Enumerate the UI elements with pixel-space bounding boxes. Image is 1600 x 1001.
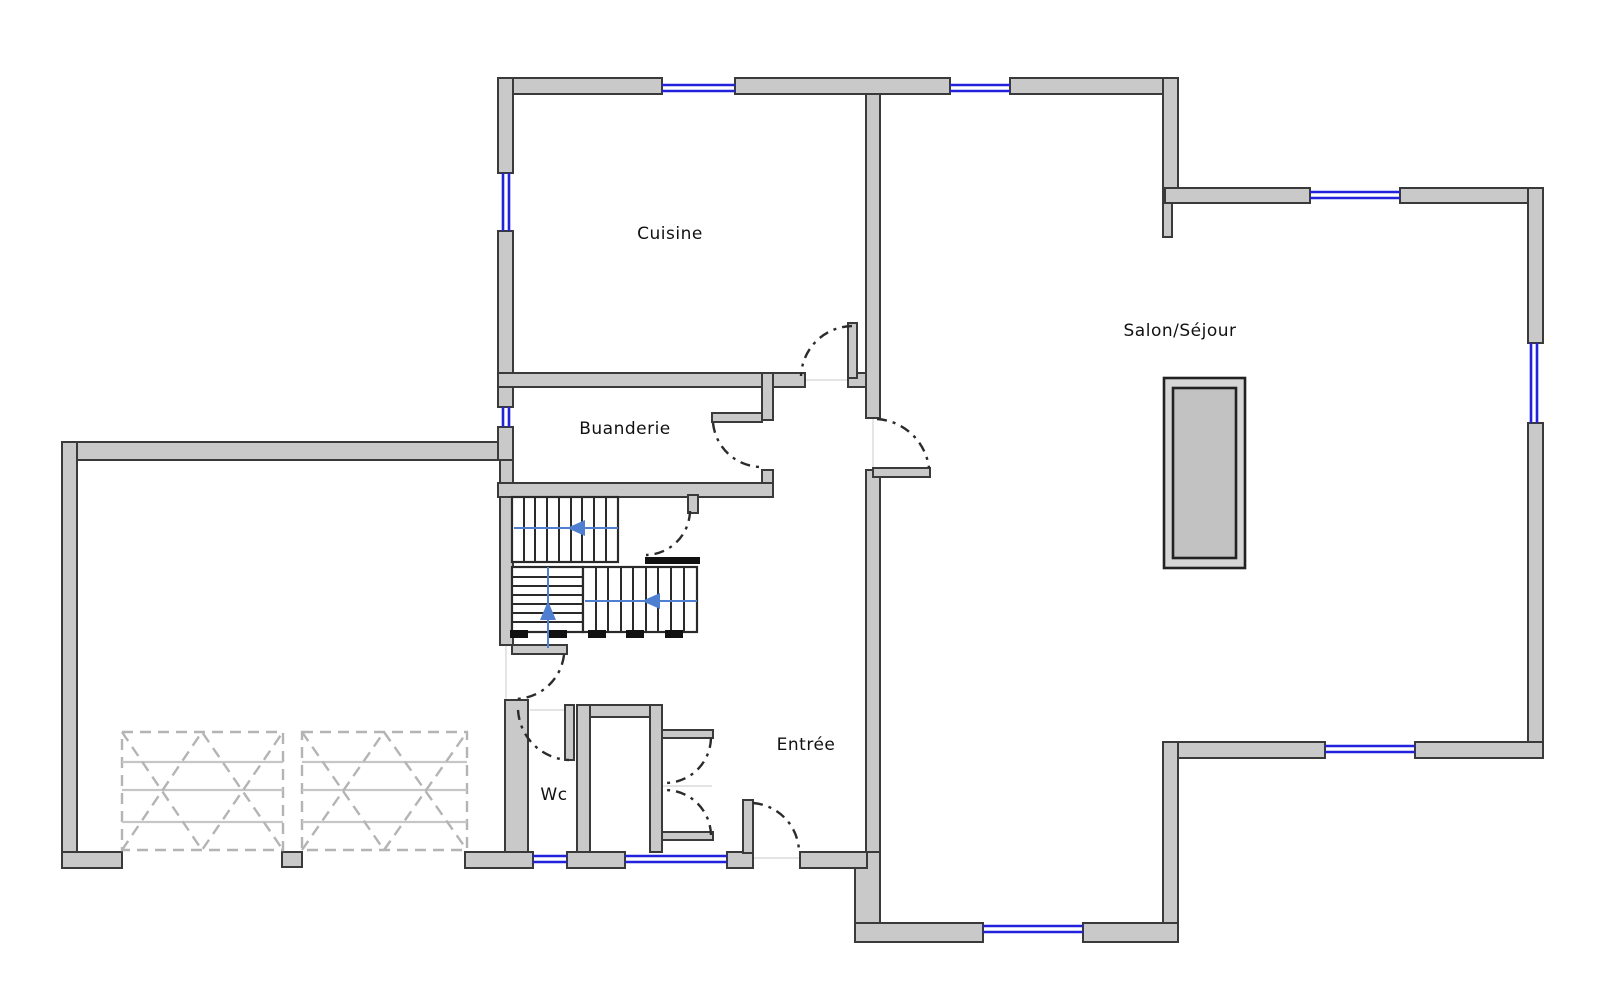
room-label-entree: Entrée xyxy=(777,735,836,755)
stair-upper-flight xyxy=(512,497,618,562)
window xyxy=(533,856,567,862)
room-label-cuisine: Cuisine xyxy=(637,224,703,244)
window xyxy=(503,407,509,427)
window xyxy=(983,926,1083,932)
garage-doors xyxy=(122,732,467,850)
closet-door-leaf-top xyxy=(662,730,713,738)
entry-door-arc xyxy=(753,803,799,851)
closet-door-arc-bottom xyxy=(665,790,711,835)
window xyxy=(662,85,735,91)
window xyxy=(1325,746,1415,752)
cuisine-door-leaf xyxy=(848,323,857,378)
fireplace xyxy=(1164,378,1245,568)
room-label-wc: Wc xyxy=(540,785,567,805)
closet-door-arc-top xyxy=(665,738,711,783)
entry-door-leaf xyxy=(743,800,753,853)
wc-door-leaf xyxy=(565,705,574,760)
stair-threshold xyxy=(645,557,700,564)
room-label-buanderie: Buanderie xyxy=(579,419,671,439)
cuisine-door-arc xyxy=(801,326,852,376)
window xyxy=(503,173,509,231)
window xyxy=(625,856,727,862)
floor-plan-drawing xyxy=(0,0,1600,1001)
window xyxy=(1531,343,1537,423)
window xyxy=(950,85,1010,91)
stair-door-arc xyxy=(646,511,690,555)
buanderie-door-arc xyxy=(713,423,761,467)
salon-door-leaf xyxy=(873,468,930,477)
stair-lower-flight xyxy=(583,567,697,632)
garage-door-leaf xyxy=(512,645,567,654)
garage-door-left xyxy=(122,732,283,850)
room-label-salon: Salon/Séjour xyxy=(1124,321,1237,341)
salon-door-arc xyxy=(877,419,929,468)
floor-plan: Cuisine Salon/Séjour Buanderie Wc Entrée xyxy=(0,0,1600,1001)
buanderie-door-leaf xyxy=(712,413,762,422)
window xyxy=(1310,192,1400,198)
staircase xyxy=(510,497,700,648)
garage-door-arc xyxy=(514,655,564,699)
closet-door-leaf-bottom xyxy=(662,832,713,840)
garage-door-right xyxy=(302,732,467,850)
